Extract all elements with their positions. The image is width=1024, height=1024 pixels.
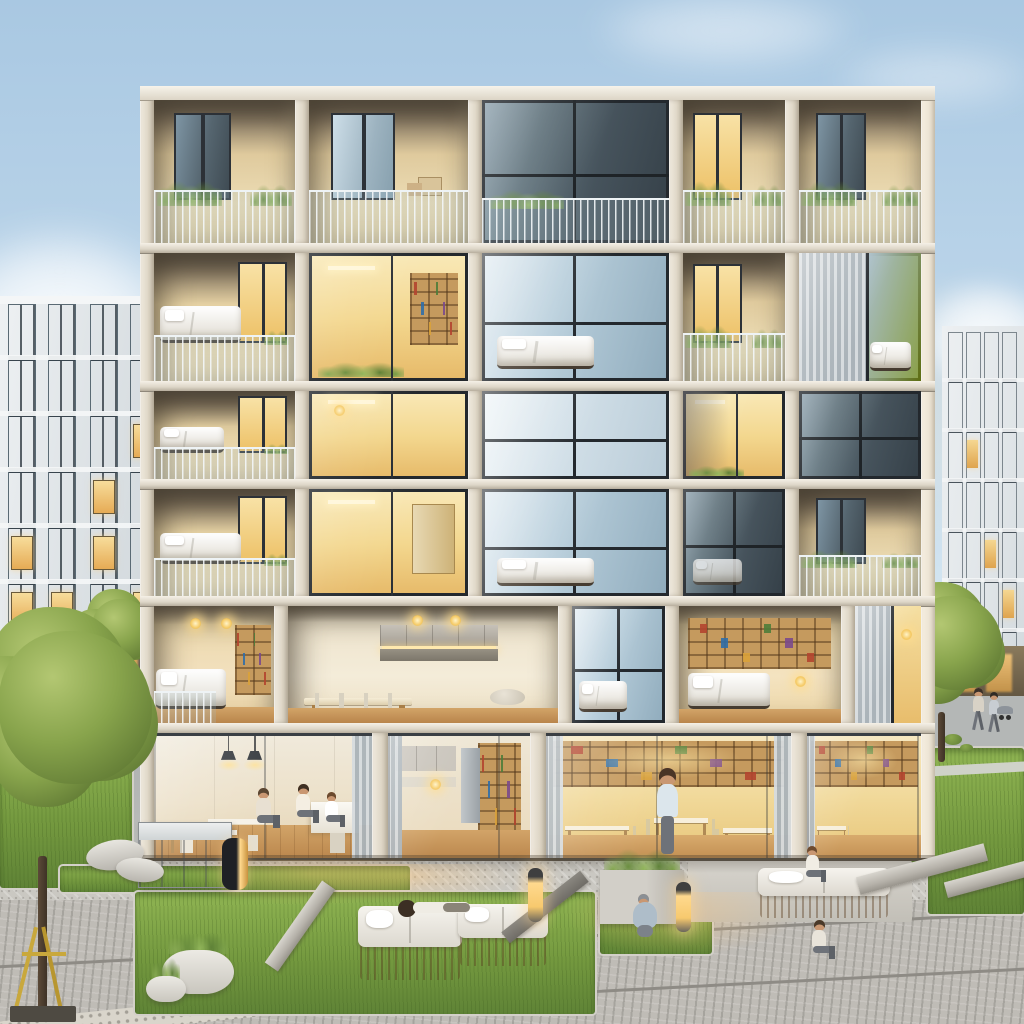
daybed-base [760, 893, 888, 918]
module-balcony [154, 100, 295, 243]
pillow [161, 672, 178, 685]
pouf [490, 689, 525, 705]
tree-left-foreground-canopy [0, 614, 156, 810]
facade-pier [295, 253, 309, 381]
pillow [769, 871, 803, 883]
facade-pier [841, 606, 855, 723]
pillow [696, 561, 708, 569]
facade-pier [669, 489, 683, 596]
person-stand [646, 768, 694, 856]
duvet-fold [710, 563, 714, 580]
module-window-warm [309, 391, 468, 479]
facade-pier [468, 489, 482, 596]
bookshelf-wall [688, 618, 831, 669]
shelf-unit [410, 273, 458, 345]
left-building-lit-window [93, 480, 115, 514]
kitchen-cabinets [396, 746, 456, 772]
bed [688, 673, 769, 709]
duvet-fold [532, 341, 538, 363]
pillow [366, 910, 393, 928]
left-building-lit-window [11, 536, 33, 570]
book [482, 755, 484, 772]
tree-right-trunk [938, 712, 945, 762]
book [443, 302, 445, 315]
balcony-railing [154, 447, 295, 479]
lit-bin [222, 838, 248, 890]
person-torso [657, 784, 678, 817]
module-cut-bedroom [154, 606, 274, 723]
facade-row-3 [154, 391, 921, 479]
book [721, 638, 728, 647]
daybed-base [460, 935, 546, 966]
window-mullion [736, 391, 738, 479]
bollard-light [676, 882, 691, 932]
facade-pier [295, 100, 309, 243]
kitchen-cabinets [380, 625, 499, 646]
pillow [165, 310, 185, 321]
main-building [140, 86, 935, 861]
pillow [872, 345, 882, 354]
module-window-bright [572, 606, 665, 723]
parapet [140, 86, 935, 101]
ground-pier [372, 733, 388, 861]
book [248, 672, 250, 685]
room-floor [679, 709, 841, 723]
lamp-glow [221, 618, 232, 629]
balcony-railing [154, 558, 295, 596]
window-mullion [391, 253, 393, 381]
balcony-railing [154, 335, 295, 381]
module-balcony [683, 100, 785, 243]
facade-row-1 [154, 100, 921, 243]
lamp-glow [190, 618, 201, 629]
stroller-wheel [1006, 715, 1011, 720]
person-sit [800, 846, 828, 896]
book [414, 282, 416, 295]
pillow [582, 684, 594, 694]
book [700, 624, 707, 633]
lamp-glow [334, 405, 345, 416]
book [488, 781, 490, 798]
person-crouch [630, 894, 661, 950]
door-mullion [362, 115, 366, 198]
duvet-fold [189, 538, 194, 558]
person-sit [290, 784, 320, 838]
right-building-lit-window [1003, 590, 1014, 618]
module-balcony [799, 489, 921, 596]
bed [497, 558, 594, 587]
bay-curtain [774, 736, 791, 859]
book [501, 755, 503, 772]
module-balcony-bed [154, 253, 295, 381]
book [237, 633, 239, 646]
module-window-bright [482, 489, 669, 596]
ground-bay-library [807, 733, 921, 861]
daybed-base [360, 943, 460, 980]
kitchen-counter [396, 777, 456, 787]
glass-reflection [309, 391, 468, 479]
book [514, 808, 516, 825]
bed [870, 342, 912, 371]
balcony-railing [799, 190, 921, 243]
facade-pier [295, 391, 309, 479]
module-balcony-bed [154, 391, 295, 479]
module-cut-kitchen [288, 606, 557, 723]
bollard-light [528, 868, 543, 922]
facade-pier [665, 606, 679, 723]
window-glass [892, 606, 921, 723]
book [807, 653, 814, 662]
ground-pier [530, 733, 546, 861]
facade-row-2 [154, 253, 921, 381]
book [745, 772, 757, 780]
person-torso [973, 696, 984, 712]
bush [960, 744, 973, 752]
ground-bay-kitchen [388, 733, 530, 861]
table [723, 828, 772, 832]
dining-table [304, 698, 412, 705]
bay-curtain [807, 736, 815, 859]
module-window-bright [482, 253, 669, 381]
person-shin [313, 810, 319, 823]
module-window-curtain [799, 253, 921, 381]
facade-pier [274, 606, 288, 723]
window-mullion [866, 253, 869, 381]
facade-pier [785, 489, 799, 596]
facade-pier [785, 391, 799, 479]
book [259, 653, 261, 666]
balcony-railing [799, 555, 921, 596]
book [899, 772, 904, 780]
facade-pier [295, 489, 309, 596]
stroller [997, 706, 1013, 720]
window-mullion [573, 391, 576, 479]
facade-pier [669, 391, 683, 479]
person-legs [443, 903, 470, 912]
module-window-dark [482, 100, 669, 243]
book [743, 653, 750, 662]
planter-bowl [146, 976, 186, 1002]
module-window-bright [482, 391, 669, 479]
duvet-fold [189, 312, 195, 336]
person-shin [829, 946, 835, 959]
module-window-warm [309, 253, 468, 381]
tree-pit [10, 1006, 76, 1022]
facade-pier [785, 100, 799, 243]
curtains [799, 253, 868, 381]
duvet-fold [183, 431, 187, 448]
balcony-railing [683, 333, 785, 381]
module-window-warm [309, 489, 468, 596]
pendant-stem [228, 733, 230, 751]
stroller-wheel [999, 715, 1004, 720]
book [421, 302, 423, 315]
module-balcony-bed [154, 489, 295, 596]
book [785, 638, 792, 647]
wardrobe [412, 504, 455, 574]
bay-curtain [352, 736, 372, 859]
duvet-fold [884, 347, 888, 365]
window-mullion [391, 489, 393, 596]
lamp-glow [430, 779, 441, 790]
window-transom [799, 437, 921, 440]
balcony-door [331, 113, 395, 200]
bed [579, 681, 627, 712]
module-window-dark [799, 391, 921, 479]
pillow [502, 560, 525, 569]
left-building-lit-window [93, 536, 115, 570]
facade-pier [468, 391, 482, 479]
bay-curtain [388, 736, 402, 859]
bay-curtain [546, 736, 563, 859]
right-building-lit-window [967, 440, 978, 468]
window-mullion [391, 391, 393, 479]
book [507, 781, 509, 798]
bed [693, 559, 742, 586]
left-building-parapet [0, 296, 158, 304]
ceiling-light [328, 266, 376, 270]
fridge [461, 748, 479, 822]
bed [497, 336, 594, 370]
facade-pier [785, 253, 799, 381]
balcony-railing [482, 198, 669, 243]
book [243, 653, 245, 666]
facade-row-5 [154, 606, 921, 723]
curtains [855, 606, 892, 723]
glass-box-top [139, 823, 231, 840]
person-legs [661, 816, 675, 855]
person-head [659, 768, 677, 786]
balcony-railing [154, 691, 216, 723]
ceiling-light [328, 500, 376, 504]
person-sit [250, 788, 281, 844]
module-window-curtain [855, 606, 921, 723]
facade-row-4 [154, 489, 921, 596]
canopy-blob [0, 631, 152, 784]
module-window-dark [683, 489, 785, 596]
ground-pier [791, 733, 807, 861]
window-transom [482, 174, 669, 177]
book [436, 282, 438, 295]
room-floor [288, 708, 557, 723]
window-transom [482, 439, 669, 442]
window-mullion [891, 606, 894, 723]
facade-pier [669, 253, 683, 381]
table [565, 826, 629, 830]
balcony-railing [154, 190, 295, 243]
balcony-railing [309, 190, 468, 243]
pillow [165, 536, 185, 545]
pendant-glow [243, 759, 267, 771]
pendant-stem [254, 733, 256, 751]
person-shin [273, 815, 279, 828]
table [817, 826, 847, 830]
module-balcony [799, 100, 921, 243]
book [264, 672, 266, 685]
pillow [164, 429, 180, 437]
module-balcony [683, 253, 785, 381]
book [429, 322, 431, 335]
book [450, 322, 452, 335]
person-shin [821, 870, 827, 882]
kitchen-counter [380, 649, 499, 661]
book [819, 746, 824, 754]
lamp-glow [795, 676, 806, 687]
person-sit [320, 792, 346, 840]
table-leg [703, 823, 706, 836]
facade-pier-right [921, 86, 935, 861]
stroller-body [997, 706, 1013, 714]
facade-pier [468, 253, 482, 381]
right-building-lit-window [985, 540, 996, 568]
pillow [693, 676, 712, 687]
window-transom [482, 547, 669, 550]
person-sit [806, 920, 836, 974]
pillow [502, 339, 525, 349]
window-mullion [859, 391, 862, 479]
warm-glow [830, 741, 898, 779]
facade-pier [669, 100, 683, 243]
person-lying [398, 898, 470, 920]
balcony-railing [683, 190, 785, 243]
ceiling-light [328, 400, 376, 404]
pendant-glow [217, 759, 241, 771]
duvet-fold [532, 562, 537, 581]
facade-pier [468, 100, 482, 243]
tree-support-crossbar [22, 952, 66, 956]
module-cut-library [679, 606, 841, 723]
shelf-unit [478, 743, 521, 838]
shelf-unit [235, 625, 271, 695]
bush [944, 734, 962, 745]
window-transom [572, 669, 665, 672]
book [764, 624, 771, 633]
window-transom [482, 322, 669, 325]
module-window-warm [683, 391, 785, 479]
book [495, 808, 497, 825]
module-balcony [309, 100, 468, 243]
book [571, 746, 583, 754]
duvet-fold [718, 679, 724, 703]
book [254, 633, 256, 646]
facade-pier [558, 606, 572, 723]
person-shin [340, 815, 345, 827]
scene-root [0, 0, 1024, 1024]
duvet-fold [596, 686, 600, 706]
person-knees [637, 925, 653, 937]
window-transom [683, 545, 785, 548]
